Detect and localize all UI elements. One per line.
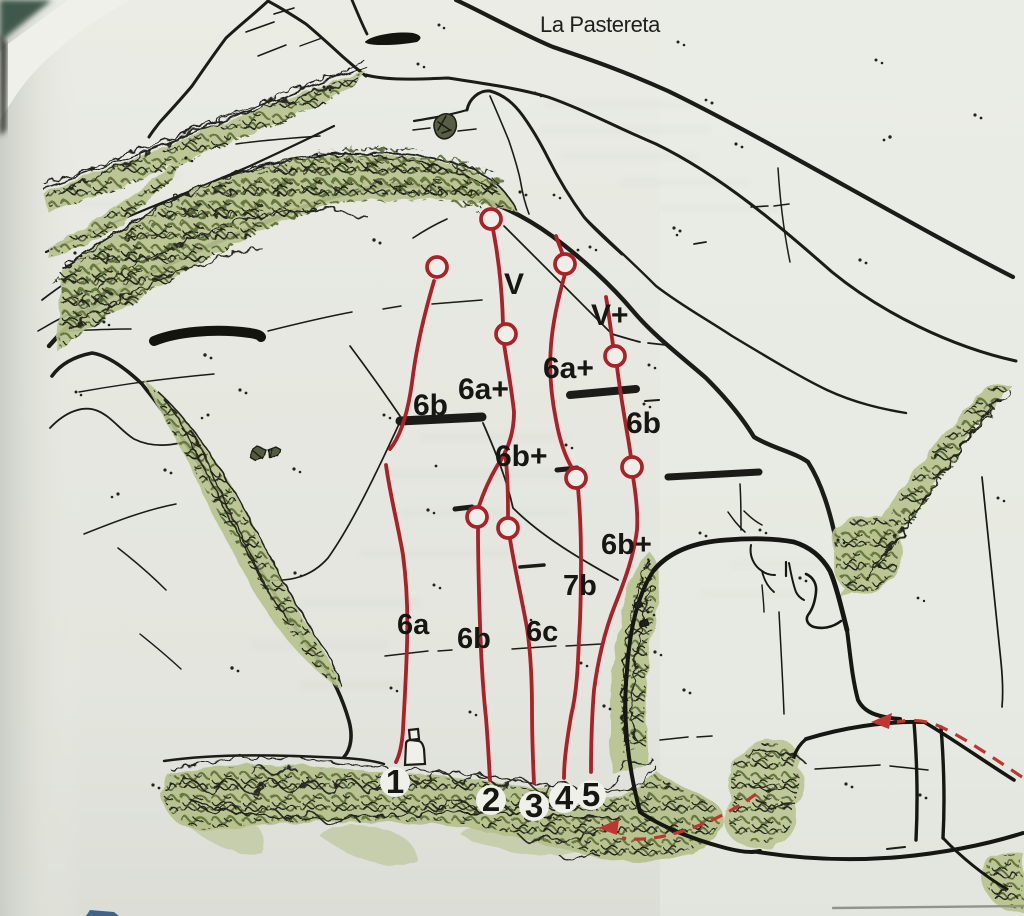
svg-text:6a: 6a bbox=[397, 609, 430, 641]
svg-text:6a+: 6a+ bbox=[543, 352, 594, 385]
svg-text:V+: V+ bbox=[591, 299, 629, 332]
svg-text:2: 2 bbox=[482, 781, 500, 818]
svg-text:3: 3 bbox=[525, 787, 543, 824]
svg-text:6b+: 6b+ bbox=[495, 440, 548, 473]
svg-text:5: 5 bbox=[582, 776, 600, 813]
svg-text:6b: 6b bbox=[457, 623, 491, 655]
svg-text:6c: 6c bbox=[526, 616, 558, 648]
svg-text:6a+: 6a+ bbox=[458, 373, 509, 406]
svg-text:4: 4 bbox=[555, 779, 574, 816]
svg-text:6b: 6b bbox=[413, 389, 448, 422]
svg-text:7b: 7b bbox=[563, 570, 597, 602]
svg-text:6b+: 6b+ bbox=[601, 529, 652, 561]
svg-text:6b: 6b bbox=[626, 407, 661, 440]
svg-text:La Pastereta: La Pastereta bbox=[540, 12, 661, 37]
svg-text:V: V bbox=[504, 268, 524, 301]
svg-text:1: 1 bbox=[386, 763, 404, 800]
